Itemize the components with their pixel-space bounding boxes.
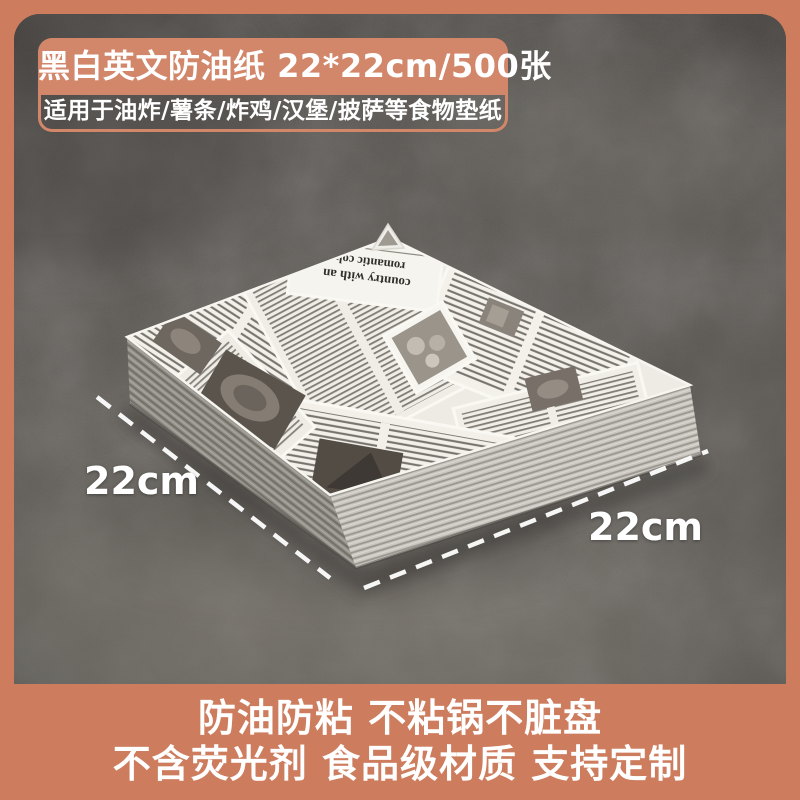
footer-line-1: 防油防粘 不粘锅不脏盘 bbox=[198, 697, 602, 741]
header-badge: 黑白英文防油纸 22*22cm/500张 适用于油炸/薯条/炸鸡/汉堡/披萨等食… bbox=[38, 38, 508, 132]
dimension-label-right: 22cm bbox=[588, 505, 703, 549]
product-image-frame: country with an romantic colu bbox=[0, 0, 800, 800]
badge-title: 黑白英文防油纸 22*22cm/500张 bbox=[38, 38, 508, 95]
footer-line-2: 不含荧光剂 食品级材质 支持定制 bbox=[113, 743, 687, 787]
footer-banner: 防油防粘 不粘锅不脏盘 不含荧光剂 食品级材质 支持定制 bbox=[0, 684, 800, 800]
dimension-label-left: 22cm bbox=[84, 459, 199, 503]
badge-subtitle: 适用于油炸/薯条/炸鸡/汉堡/披萨等食物垫纸 bbox=[38, 95, 508, 132]
